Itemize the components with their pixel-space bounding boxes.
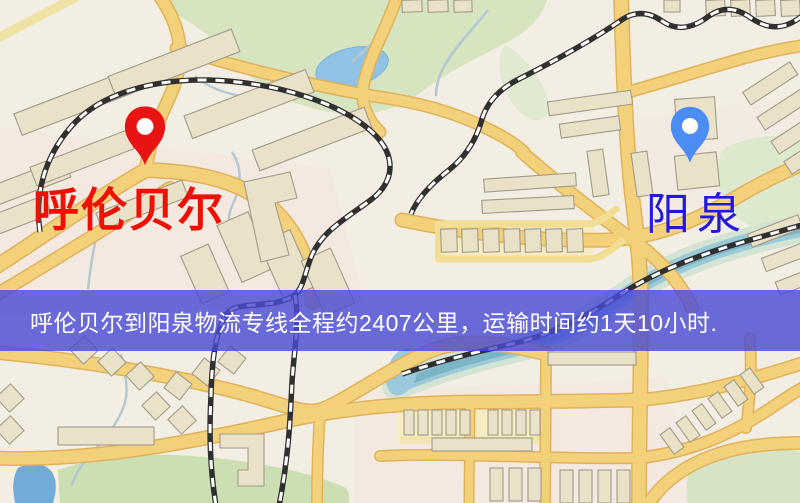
map-screenshot: 呼伦贝尔 阳泉 呼伦贝尔到阳泉物流专线全程约2407公里，运输时间约1天10小时… xyxy=(0,0,800,503)
destination-pin-icon xyxy=(667,105,713,167)
info-banner: 呼伦贝尔到阳泉物流专线全程约2407公里，运输时间约1天10小时. xyxy=(0,290,800,351)
destination-label: 阳泉 xyxy=(646,178,748,242)
info-banner-text: 呼伦贝尔到阳泉物流专线全程约2407公里，运输时间约1天10小时. xyxy=(0,304,717,338)
origin-label: 呼伦贝尔 xyxy=(33,174,225,240)
map-image xyxy=(0,0,800,503)
origin-pin-icon xyxy=(122,104,168,170)
